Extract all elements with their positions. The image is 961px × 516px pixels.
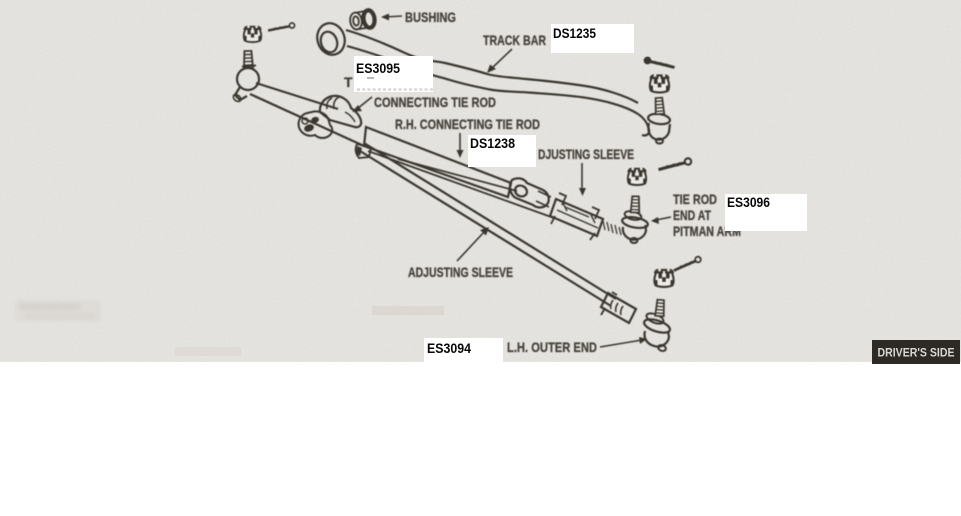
svg-text:ES3096: ES3096 — [727, 194, 770, 210]
svg-text:ADJUSTING SLEEVE: ADJUSTING SLEEVE — [408, 264, 513, 280]
svg-text:DRIVER'S SIDE: DRIVER'S SIDE — [878, 348, 955, 360]
svg-text:DJUSTING SLEEVE: DJUSTING SLEEVE — [538, 146, 634, 162]
svg-text:ES3095: ES3095 — [356, 60, 400, 76]
svg-text:ES3094: ES3094 — [427, 340, 471, 356]
svg-text:DS1235: DS1235 — [553, 25, 596, 41]
svg-text:CONNECTING TIE ROD: CONNECTING TIE ROD — [374, 94, 496, 110]
svg-text:TRACK BAR: TRACK BAR — [483, 32, 546, 48]
svg-text:TIE ROD: TIE ROD — [673, 191, 717, 207]
svg-text:BUSHING: BUSHING — [405, 9, 456, 25]
svg-text:DS1238: DS1238 — [470, 135, 515, 151]
svg-text:T: T — [344, 74, 353, 90]
svg-text:END AT: END AT — [673, 207, 711, 223]
svg-text:R.H. CONNECTING TIE ROD: R.H. CONNECTING TIE ROD — [395, 116, 540, 132]
svg-text:L.H. OUTER END: L.H. OUTER END — [507, 339, 597, 355]
